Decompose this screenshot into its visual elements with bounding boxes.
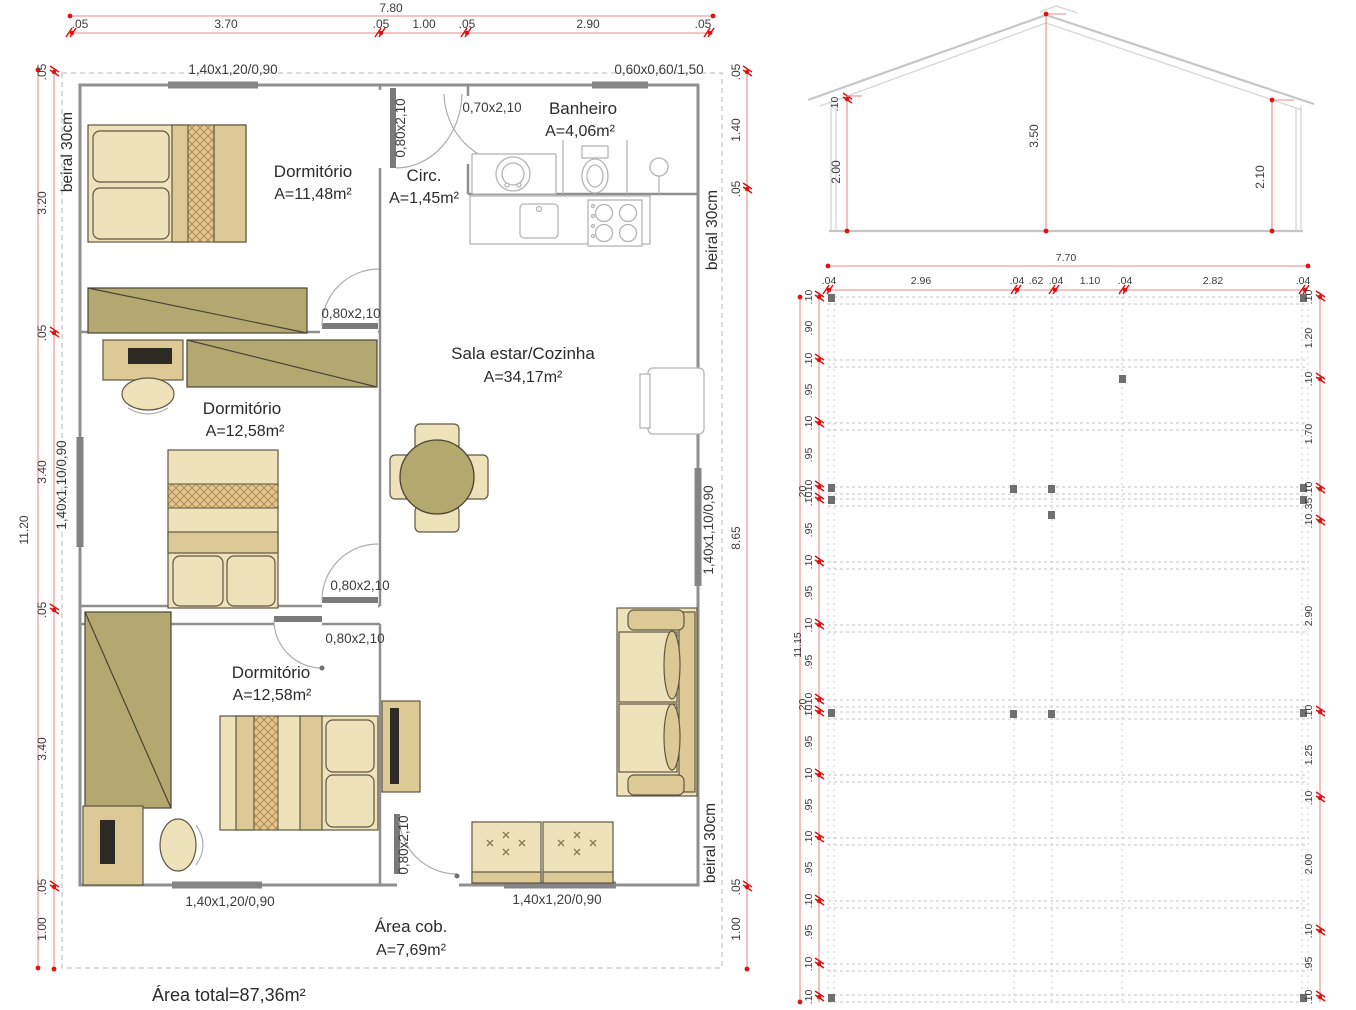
dim-label: .10 <box>1303 290 1315 305</box>
dim-label: .05 <box>695 17 712 31</box>
pillow <box>93 188 169 239</box>
dim-label: .35 <box>1303 498 1315 513</box>
eave-label: beiral 30cm <box>59 112 76 192</box>
dim-label: .04 <box>822 275 837 287</box>
tv <box>390 708 399 784</box>
door-label: 0,80x2,10 <box>330 578 389 593</box>
bed-band <box>172 125 188 242</box>
pillow <box>326 775 374 827</box>
pillow <box>173 556 223 606</box>
dim-label: .10 <box>803 290 815 305</box>
dim-label: 8.65 <box>729 526 743 550</box>
window-label: 1,40x1,10/0,90 <box>54 440 69 529</box>
room-area: A=7,69m² <box>376 942 446 959</box>
foundation-dimensions-top: 7.70 .04 2.96 .04 .62 .04 1.10 .04 2.82 … <box>822 252 1311 294</box>
window-label: 1,40x1,20/0,90 <box>512 892 601 907</box>
dim-label: 1.10 <box>1080 275 1101 287</box>
sofa-pillow <box>664 631 680 699</box>
dim-label: .05 <box>729 878 743 895</box>
dim-label: .05 <box>729 180 743 197</box>
bench-frame <box>543 872 613 883</box>
dim-label: 2.96 <box>911 275 932 287</box>
dim-label: .10 <box>803 555 815 570</box>
sofa-armrest <box>628 775 684 795</box>
sofa-pillow <box>664 704 680 770</box>
dim-label: 2.90 <box>576 17 600 31</box>
dim-label: .95 <box>803 384 815 399</box>
dim-label: 1.00 <box>412 17 436 31</box>
bed-foot <box>214 125 246 242</box>
door-leaf-dorm2 <box>322 597 378 603</box>
eave-label: beiral 30cm <box>704 190 721 270</box>
entry-opening <box>397 879 459 891</box>
door-leaf-dorm1 <box>322 323 378 329</box>
door-hinge-entry <box>455 874 460 879</box>
sofa-armrest <box>628 610 684 630</box>
door-hinge-dorm3 <box>320 666 325 671</box>
room-area: A=12,58m² <box>206 423 285 440</box>
dim-label: .10 <box>829 97 841 112</box>
room-name: Área cob. <box>375 917 448 936</box>
dim-label: 2.10 <box>1253 165 1267 189</box>
dim-label: .95 <box>803 655 815 670</box>
dim-label: 7.80 <box>379 1 403 15</box>
dim-label: 1.00 <box>729 917 743 941</box>
tv-stand <box>382 701 420 792</box>
dim-label: 1.40 <box>729 118 743 142</box>
dim-label: .10 <box>803 353 815 368</box>
dim-label: .95 <box>803 523 815 538</box>
window-label: 1,40x1,20/0,90 <box>185 894 274 909</box>
bed-band <box>300 716 322 830</box>
room-area: A=4,06m² <box>545 123 615 140</box>
window-label: 0,60x0,60/1,50 <box>614 62 703 77</box>
drawing-canvas: 1,40x1,20/0,90 0,60x0,60/1,50 1,40x1,10/… <box>0 0 1356 1010</box>
desk-computer <box>100 820 115 864</box>
faucet-dot <box>517 183 521 187</box>
dimensions-right: .05 1.40 .05 8.65 .05 1.00 <box>729 63 752 971</box>
dim-label: 1.70 <box>1303 424 1315 445</box>
dim-label: 2.00 <box>829 160 843 184</box>
dim-label: .05 <box>35 324 49 341</box>
dim-label: .10 <box>1303 924 1315 939</box>
dining-table <box>400 440 474 514</box>
door-leaf-dorm3 <box>274 616 322 622</box>
dim-label: 3.40 <box>35 460 49 484</box>
dim-label: .10 <box>803 618 815 633</box>
dim-label: .95 <box>803 862 815 877</box>
door-label: 0,70x2,10 <box>462 100 521 115</box>
pillow <box>93 131 169 182</box>
burner <box>620 225 637 242</box>
dim-label: .95 <box>803 736 815 751</box>
dim-label: .04 <box>1010 275 1025 287</box>
dim-label: .95 <box>803 799 815 814</box>
desk-chair <box>160 819 196 871</box>
burner <box>596 205 613 222</box>
dim-label: .10 <box>803 416 815 431</box>
dim-label: .10 <box>1303 791 1315 806</box>
dim-label: .05 <box>373 17 390 31</box>
roof-inner-line <box>820 23 1302 110</box>
room-area: A=12,58m² <box>233 687 312 704</box>
dim-label: .04 <box>1296 275 1311 287</box>
dim-label: .10 <box>803 894 815 909</box>
beam-columns <box>828 297 1308 1002</box>
porch-bench <box>472 822 613 883</box>
bed-band <box>168 532 278 553</box>
foundation-dimensions-right: .10 1.20 .10 1.70 .10 .35 .10 2.90 .10 1… <box>1303 290 1325 1005</box>
bathroom-sink-bowl <box>502 163 524 185</box>
bed-band <box>236 716 254 830</box>
dim-label: .10 <box>803 492 815 507</box>
fridge-handle <box>640 374 650 428</box>
bench-frame <box>472 872 541 883</box>
dim-label: 2.90 <box>1303 606 1315 627</box>
door-label: 0,80x2,10 <box>393 98 408 157</box>
toilet-tank <box>582 146 608 158</box>
dim-label: .10 <box>1303 372 1315 387</box>
dim-label: .05 <box>35 878 49 895</box>
room-name: Circ. <box>407 166 442 185</box>
door-label: 0,80x2,10 <box>396 815 411 874</box>
floor-plan: 1,40x1,20/0,90 0,60x0,60/1,50 1,40x1,10/… <box>17 1 752 1005</box>
dim-label: .05 <box>35 63 49 80</box>
window-left <box>77 437 84 547</box>
fridge <box>648 368 704 434</box>
pillow <box>227 556 275 606</box>
foundation-plan: 7.70 .04 2.96 .04 .62 .04 1.10 .04 2.82 … <box>792 252 1325 1004</box>
desk-chair <box>122 378 174 410</box>
room-area: A=11,48m² <box>274 186 352 203</box>
window-label: 1,40x1,20/0,90 <box>188 62 277 77</box>
dim-label: .05 <box>35 601 49 618</box>
dim-label: 3.40 <box>35 737 49 761</box>
elevation-view: .10 2.00 3.50 2.10 <box>808 6 1314 233</box>
dim-label: .62 <box>1029 275 1044 287</box>
shower-head <box>650 158 668 176</box>
dim-label: 1.25 <box>1303 745 1315 766</box>
desk-computer <box>128 348 172 364</box>
room-area: A=34,17m² <box>484 369 563 386</box>
door-label: 0,80x2,10 <box>325 631 384 646</box>
dim-label: .95 <box>803 448 815 463</box>
sofa-backrest <box>679 612 695 792</box>
window-bottom-left <box>172 882 262 889</box>
dim-label: .10 <box>803 990 815 1005</box>
faucet-dot <box>505 183 509 187</box>
bed-hatch-band <box>254 716 278 830</box>
dim-label: .10 <box>803 705 815 720</box>
dim-label: 1.00 <box>35 917 49 941</box>
kitchen-faucet <box>537 207 542 212</box>
burner <box>620 205 637 222</box>
door-label: 0,80x2,10 <box>321 306 380 321</box>
pillow <box>326 720 374 772</box>
dim-label: .05 <box>72 17 89 31</box>
dim-label: 2.82 <box>1203 275 1224 287</box>
foundation-dimensions-left: 11.15 .20 .20 .10 .90 .10 .95 .10 .95 .1… <box>792 290 824 1005</box>
room-name: Dormitório <box>232 663 310 682</box>
dim-label: .10 <box>803 831 815 846</box>
dim-label: .04 <box>1118 275 1133 287</box>
dim-label: .10 <box>803 768 815 783</box>
dim-label: 3.50 <box>1027 124 1041 148</box>
room-area: A=1,45m² <box>389 190 459 207</box>
dim-label: .95 <box>803 925 815 940</box>
total-area-label: Área total=87,36m² <box>152 985 306 1005</box>
dimensions-left: 11.20 .05 3.20 .05 3.40 .05 3.40 .05 1.0… <box>17 63 59 971</box>
joist-rows <box>828 297 1308 1002</box>
window-label: 1,40x1,10/0,90 <box>701 485 716 574</box>
bed-hatch-band <box>188 125 214 242</box>
room-name: Sala estar/Cozinha <box>451 344 595 363</box>
dim-label: .95 <box>1303 957 1315 972</box>
dim-label: .10 <box>803 957 815 972</box>
dim-label: 3.20 <box>35 191 49 215</box>
dim-label: .10 <box>1303 514 1315 529</box>
post-markers <box>828 294 1307 1002</box>
dim-label: .95 <box>803 586 815 601</box>
dim-label: .10 <box>1303 990 1315 1005</box>
dim-label: .90 <box>803 321 815 336</box>
room-name: Dormitório <box>203 399 281 418</box>
elevation-dimensions: .10 2.00 3.50 2.10 <box>829 12 1294 234</box>
dim-label: 2.00 <box>1303 854 1315 875</box>
dim-label: .05 <box>729 63 743 80</box>
bed-hatch-band <box>168 484 278 508</box>
room-name: Dormitório <box>274 162 352 181</box>
dimensions-top: 7.80 .05 3.70 .05 1.00 .05 2.90 .05 <box>66 1 715 37</box>
toilet-bowl-inner <box>587 165 603 187</box>
dim-label: .04 <box>1049 275 1064 287</box>
window-top-right <box>592 82 648 89</box>
dim-label: 3.70 <box>214 17 238 31</box>
architectural-drawing: 1,40x1,20/0,90 0,60x0,60/1,50 1,40x1,10/… <box>0 0 1356 1010</box>
dim-label: 7.70 <box>1056 252 1077 264</box>
dim-label: .05 <box>459 17 476 31</box>
burner <box>596 225 613 242</box>
room-name: Banheiro <box>549 99 617 118</box>
dim-label: 11.15 <box>792 632 804 658</box>
sofa <box>617 608 697 796</box>
dim-label: .10 <box>1303 705 1315 720</box>
window-top-left <box>168 82 258 89</box>
eave-label: beiral 30cm <box>702 803 719 883</box>
dim-label: 11.20 <box>17 515 31 544</box>
dim-label: .10 <box>1303 482 1315 497</box>
dim-label: 1.20 <box>1303 328 1315 349</box>
